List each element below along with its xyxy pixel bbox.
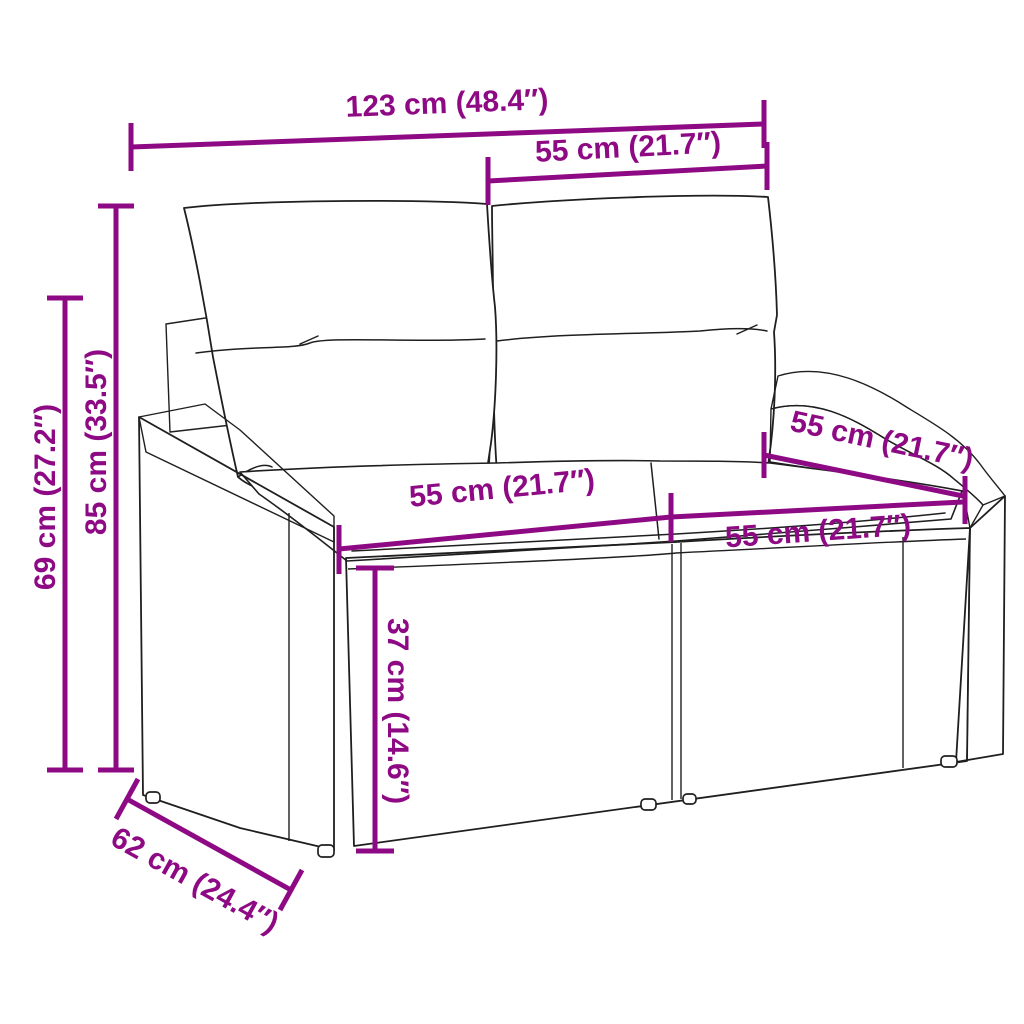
foot-center-left [641, 799, 656, 810]
foot-left-front [318, 845, 334, 857]
foot-right-front [941, 756, 957, 767]
dim-seat-height-label: 37 cm (14.6″) [381, 618, 414, 804]
foot-left-rear [146, 792, 160, 803]
foot-center-right [683, 794, 696, 804]
dim-total-height-label: 85 cm (33.5″) [80, 349, 113, 535]
product-dimension-diagram: 123 cm (48.4″) 55 cm (21.7″) 85 cm (33.5… [0, 0, 1024, 1024]
dim-arm-height-label: 69 cm (27.2″) [29, 404, 62, 590]
right-back-cushion-body [492, 196, 777, 490]
right-back-cushion [492, 196, 777, 490]
